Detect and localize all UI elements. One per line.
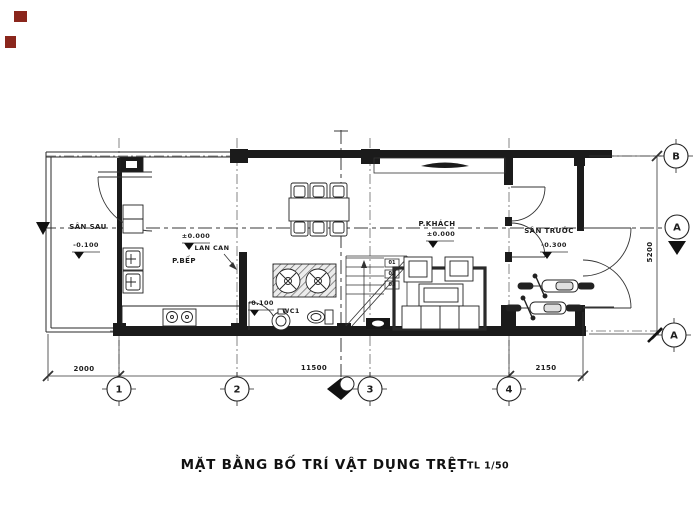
room-label-living: P.KHÁCH xyxy=(418,220,455,228)
dim-front-yard: 2150 xyxy=(535,364,556,372)
motorbike-2 xyxy=(506,296,582,320)
section-bubble-a: A xyxy=(673,223,681,234)
dim-width: 5200 xyxy=(646,241,654,262)
level-kitchen: ±0.000 xyxy=(182,232,210,240)
room-label-wc: WC1 xyxy=(282,307,300,315)
grid-bubble-b: B xyxy=(672,152,680,163)
vent-box xyxy=(366,318,390,329)
tv-unit xyxy=(374,158,505,173)
lan-can-leader xyxy=(224,254,237,270)
kitchen-fixtures xyxy=(120,157,336,326)
sofa-set xyxy=(394,257,485,329)
floor-plan-drawing xyxy=(0,0,696,530)
dim-house: 11500 xyxy=(301,364,327,372)
level-wc: -0.100 xyxy=(248,299,274,307)
dining-set xyxy=(289,183,349,236)
floor-plan-page: SÂN SAU -0.100 ±0.000 LAN CAN P.BẾP -0.1… xyxy=(0,0,696,530)
stair-step-tag: 02 xyxy=(389,271,396,277)
level-front-yard: -0.300 xyxy=(541,241,567,249)
drawing-title: MẶT BẰNG BỐ TRÍ VẬT DỤNG TRỆT xyxy=(181,457,468,473)
grid-bubble-2: 2 xyxy=(234,385,241,396)
room-label-back-yard: SÂN SAU xyxy=(69,223,106,231)
stair-step-tag: 03 xyxy=(389,282,396,288)
room-label-front-yard: SÂN TRƯỚC xyxy=(524,227,574,235)
room-label-kitchen: P.BẾP xyxy=(172,257,196,265)
stair-step-tag: 01 xyxy=(389,260,396,266)
dim-back-yard: 2000 xyxy=(73,365,94,373)
grid-bubble-1: 1 xyxy=(116,385,123,396)
red-mark-1 xyxy=(14,11,27,22)
annotation-lan-can: LAN CAN xyxy=(195,244,230,252)
grid-bubble-a: A xyxy=(670,331,678,342)
grid-bubble-4: 4 xyxy=(506,385,513,396)
level-back-yard: -0.100 xyxy=(73,241,99,249)
motorbike-1 xyxy=(518,274,594,298)
red-mark-2 xyxy=(5,36,16,48)
drawing-scale: TL 1/50 xyxy=(467,461,509,472)
grid-bubble-3: 3 xyxy=(367,385,374,396)
level-living: ±0.000 xyxy=(427,230,455,238)
